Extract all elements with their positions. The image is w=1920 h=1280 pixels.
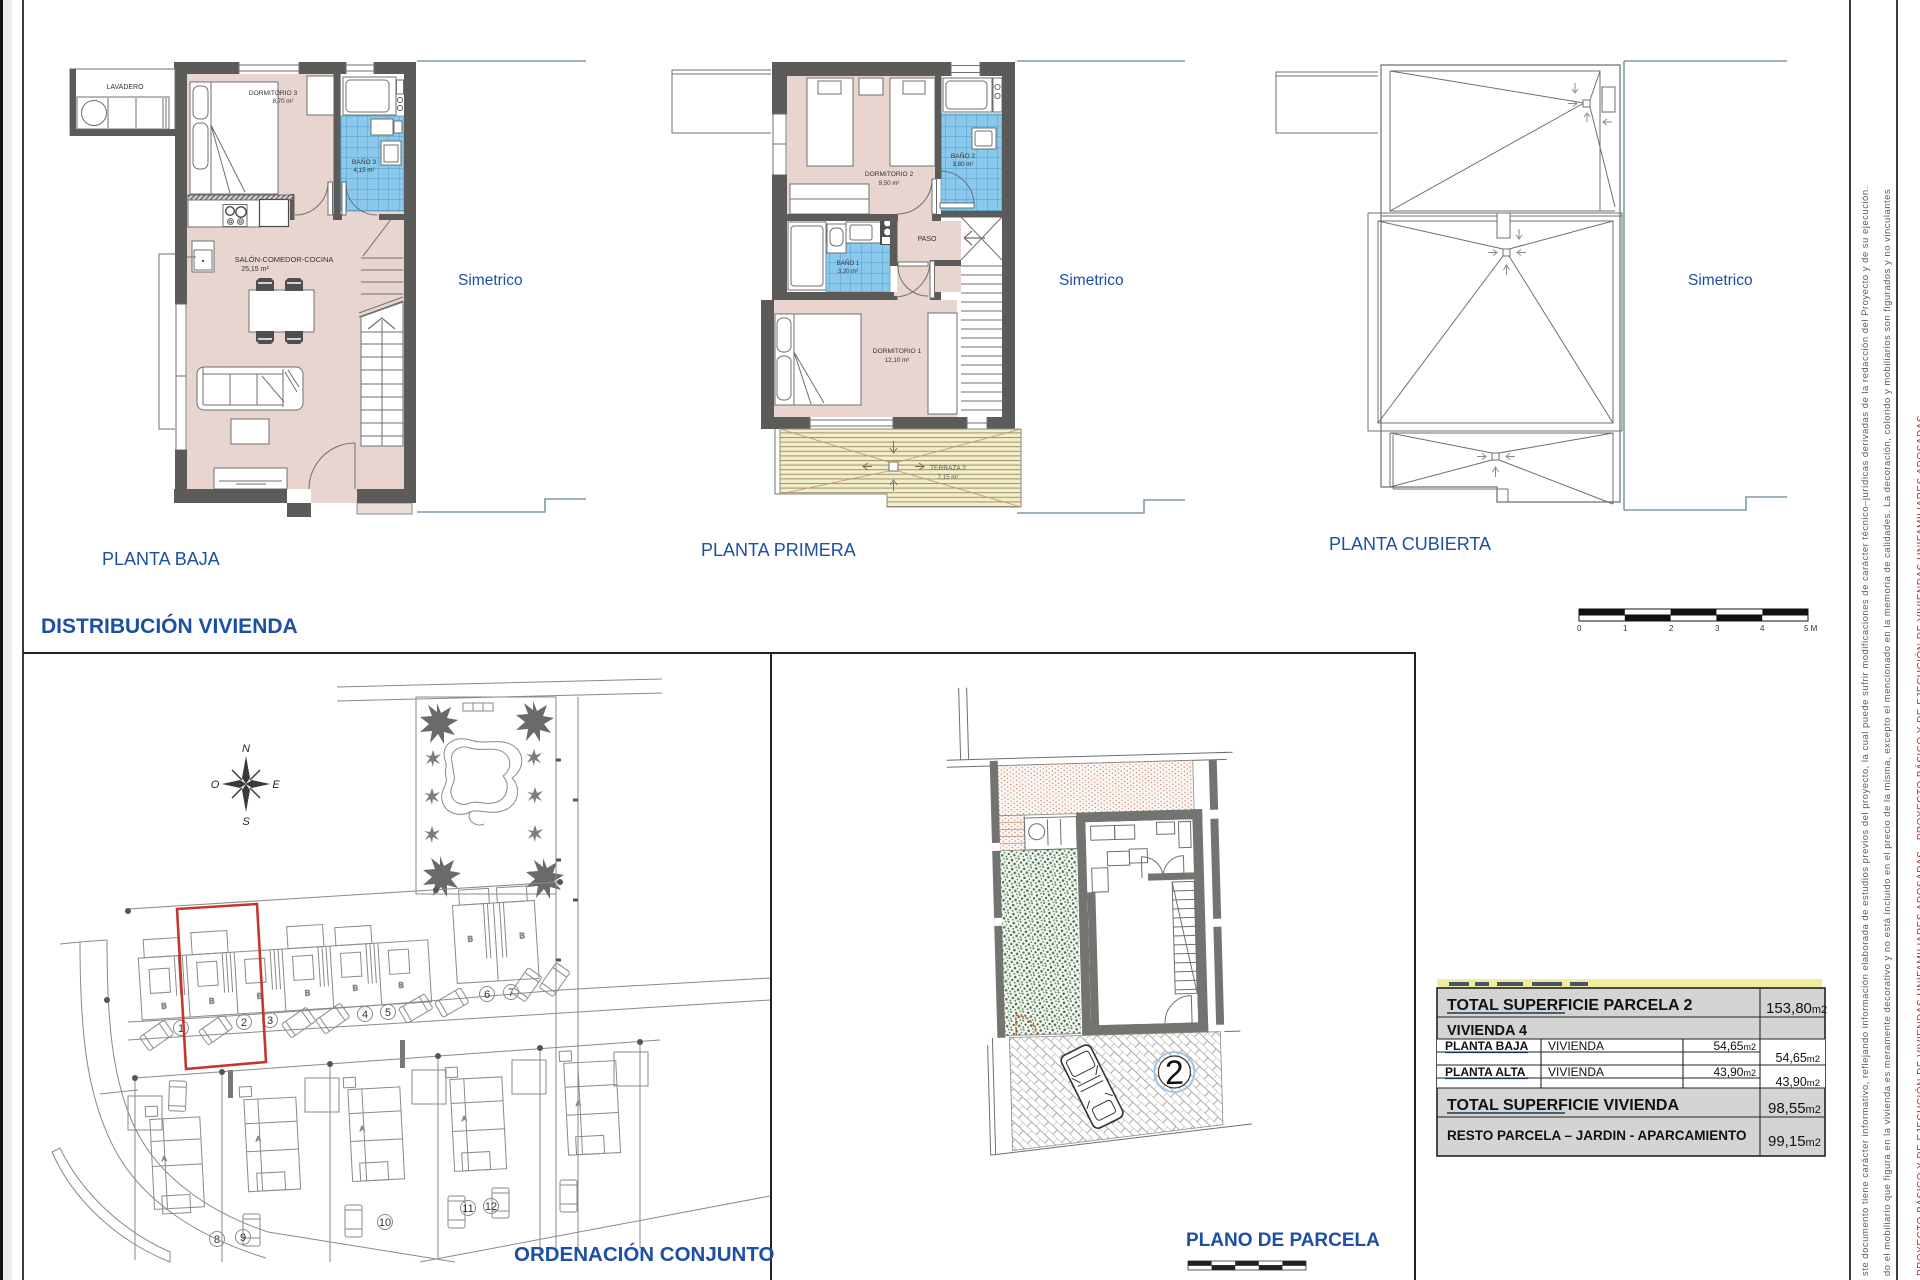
svg-text:3,80 m²: 3,80 m² <box>953 161 974 168</box>
svg-text:A: A <box>256 1136 261 1143</box>
svg-text:A: A <box>360 1126 365 1133</box>
svg-text:2: 2 <box>241 1017 247 1029</box>
svg-text:10: 10 <box>379 1217 391 1229</box>
svg-text:B: B <box>209 996 215 1005</box>
svg-text:4: 4 <box>1760 624 1765 633</box>
svg-text:B: B <box>161 1001 167 1010</box>
svg-text:B: B <box>352 983 358 992</box>
svg-text:PLANTA CUBIERTA: PLANTA CUBIERTA <box>1329 534 1491 554</box>
svg-text:TERRAZA 2: TERRAZA 2 <box>930 465 966 472</box>
svg-text:4,15 m²: 4,15 m² <box>354 167 375 174</box>
svg-text:TOTAL SUPERFICIE VIVIENDA: TOTAL SUPERFICIE VIVIENDA <box>1447 1097 1679 1114</box>
svg-text:Simetrico: Simetrico <box>458 272 523 289</box>
svg-text:BAÑO 1: BAÑO 1 <box>837 260 860 267</box>
svg-text:PLANTA PRIMERA: PLANTA PRIMERA <box>701 540 856 560</box>
svg-text:1: 1 <box>1623 624 1628 633</box>
svg-text:B: B <box>519 931 525 940</box>
svg-text:9,50 m²: 9,50 m² <box>879 180 900 187</box>
svg-text:2: 2 <box>1164 1054 1184 1093</box>
svg-text:3: 3 <box>1715 624 1720 633</box>
svg-text:ORDENACIÓN CONJUNTO: ORDENACIÓN CONJUNTO <box>514 1242 774 1266</box>
svg-text:E: E <box>272 779 280 791</box>
svg-text:N: N <box>242 743 250 755</box>
svg-text:DORMITORIO 1: DORMITORIO 1 <box>873 348 922 355</box>
svg-text:54,65m2: 54,65m2 <box>1776 1051 1820 1065</box>
svg-text:VIVIENDA 4: VIVIENDA 4 <box>1447 1023 1527 1039</box>
svg-text:Simetrico: Simetrico <box>1059 272 1124 289</box>
svg-text:O: O <box>211 779 220 791</box>
svg-text:PLANTA BAJA: PLANTA BAJA <box>102 549 220 569</box>
svg-text:BAÑO 3: BAÑO 3 <box>352 157 377 166</box>
svg-text:Simetrico: Simetrico <box>1688 272 1753 289</box>
svg-text:DISTRIBUCIÓN VIVIENDA: DISTRIBUCIÓN VIVIENDA <box>41 614 298 638</box>
svg-text:A: A <box>576 1100 581 1107</box>
svg-text:9: 9 <box>240 1232 246 1244</box>
svg-text:8,70 m²: 8,70 m² <box>273 98 294 105</box>
svg-text:2: 2 <box>1669 624 1674 633</box>
svg-text:SALÓN-COMEDOR-COCINA: SALÓN-COMEDOR-COCINA <box>235 255 334 264</box>
svg-text:VIVIENDA: VIVIENDA <box>1548 1065 1604 1079</box>
svg-text:B: B <box>305 988 311 997</box>
svg-text:TOTAL SUPERFICIE PARCELA 2: TOTAL SUPERFICIE PARCELA 2 <box>1447 997 1692 1014</box>
svg-text:LAVADERO: LAVADERO <box>106 84 144 91</box>
svg-text:RESTO PARCELA – JARDIN - APARC: RESTO PARCELA – JARDIN - APARCAMIENTO <box>1447 1128 1747 1143</box>
svg-text:DORMITORIO 3: DORMITORIO 3 <box>249 90 298 97</box>
svg-text:PLANO DE PARCELA: PLANO DE PARCELA <box>1186 1230 1380 1251</box>
svg-text:do el mobiliario que figura en: do el mobiliario que figura en la vivien… <box>1882 189 1893 1276</box>
svg-text:5: 5 <box>385 1007 391 1019</box>
svg-text:PLANTA BAJA: PLANTA BAJA <box>1445 1039 1529 1053</box>
svg-text:3,20 m²: 3,20 m² <box>838 269 858 275</box>
svg-text:5 M: 5 M <box>1804 624 1818 633</box>
svg-text:25,15 m²: 25,15 m² <box>241 266 269 273</box>
svg-text:DORMITORIO 2: DORMITORIO 2 <box>865 171 914 178</box>
svg-text:S: S <box>242 816 250 828</box>
svg-text:BAÑO 2: BAÑO 2 <box>951 151 976 160</box>
svg-text:PLANTA ALTA: PLANTA ALTA <box>1445 1065 1526 1079</box>
svg-text:12,10 m²: 12,10 m² <box>885 357 909 364</box>
svg-text:43,90m2: 43,90m2 <box>1713 1065 1756 1079</box>
svg-text:VIVIENDA: VIVIENDA <box>1548 1039 1604 1053</box>
svg-text:B: B <box>398 980 404 989</box>
svg-text:4: 4 <box>362 1009 368 1021</box>
svg-text:11: 11 <box>462 1203 473 1215</box>
svg-text:ste documento tiene carácter i: ste documento tiene carácter informativo… <box>1860 186 1871 1276</box>
svg-text:54,65m2: 54,65m2 <box>1713 1039 1756 1053</box>
svg-text:43,90m2: 43,90m2 <box>1776 1075 1820 1089</box>
svg-text:12: 12 <box>485 1201 497 1213</box>
svg-text:A: A <box>162 1156 167 1163</box>
svg-text:7,15 m²: 7,15 m² <box>938 474 959 481</box>
svg-text:6: 6 <box>484 989 490 1001</box>
svg-text:A: A <box>462 1116 467 1123</box>
svg-text:3: 3 <box>267 1015 273 1027</box>
svg-text:0: 0 <box>1577 624 1582 633</box>
svg-text:B: B <box>467 934 473 943</box>
svg-text:PASO: PASO <box>918 236 937 243</box>
